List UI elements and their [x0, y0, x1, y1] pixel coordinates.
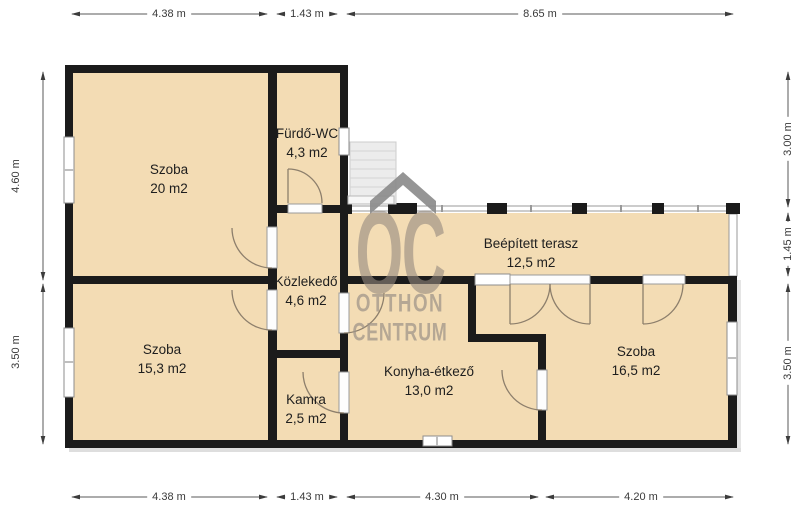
- wall-segment: [538, 410, 546, 448]
- wall-segment: [685, 276, 737, 284]
- room-area: 12,5 m2: [484, 253, 579, 272]
- dim-label-right-3: 3.50 m: [782, 341, 794, 385]
- room-area: 16,5 m2: [612, 361, 661, 380]
- door-panel: [339, 372, 349, 413]
- wall-segment: [65, 276, 277, 284]
- watermark-otthon: OTTHON: [356, 290, 444, 319]
- dim-label-right-1: 3.00 m: [782, 117, 794, 161]
- wall-segment: [65, 440, 737, 448]
- floor-plan: Szoba 20 m2 Fürdő-WC 4,3 m2 Közlekedő 4,…: [0, 0, 800, 516]
- room-area: 15,3 m2: [138, 359, 187, 378]
- door-panel: [288, 204, 322, 213]
- room-label-kamra: Kamra 2,5 m2: [285, 390, 326, 428]
- door-panel: [537, 370, 547, 410]
- room-label-szoba-20: Szoba 20 m2: [150, 160, 188, 198]
- window-mullion: [727, 357, 737, 359]
- wall-segment: [538, 342, 546, 370]
- terrace-post: [652, 203, 664, 214]
- terrace-post: [340, 203, 352, 214]
- watermark-centrum: CENTRUM: [352, 319, 447, 348]
- door-panel: [339, 293, 349, 333]
- room-name: Szoba: [150, 160, 188, 179]
- wall-shadow: [69, 448, 741, 452]
- window-mullion: [64, 169, 74, 171]
- dim-label-bottom-2: 1.43 m: [285, 491, 329, 503]
- glazing-tick: [697, 205, 699, 212]
- room-name: Fürdő-WC: [276, 124, 338, 143]
- room-area: 4,6 m2: [274, 291, 337, 310]
- room-label-konyha: Konyha-étkező 13,0 m2: [384, 362, 474, 400]
- room-area: 4,3 m2: [276, 143, 338, 162]
- room-area: 20 m2: [150, 179, 188, 198]
- window: [339, 128, 349, 155]
- glazing-tick: [620, 205, 622, 212]
- wall-segment: [268, 330, 277, 448]
- dim-label-bottom-3: 4.30 m: [420, 491, 464, 503]
- wall-segment: [268, 350, 348, 358]
- terrace-post: [487, 203, 507, 214]
- room-label-kozlekedo: Közlekedő 4,6 m2: [274, 272, 337, 310]
- window-mullion: [64, 361, 74, 363]
- dim-label-top-2: 1.43 m: [285, 8, 329, 20]
- room-name: Kamra: [285, 390, 326, 409]
- room-area: 13,0 m2: [384, 381, 474, 400]
- room-name: Szoba: [612, 342, 661, 361]
- terrace-post: [572, 203, 587, 214]
- room-label-szoba-153: Szoba 15,3 m2: [138, 340, 187, 378]
- wall-segment: [468, 284, 476, 338]
- room-name: Konyha-étkező: [384, 362, 474, 381]
- wall-segment: [340, 413, 348, 448]
- dim-label-top-1: 4.38 m: [147, 8, 191, 20]
- glazing-tick: [530, 205, 532, 212]
- dim-label-left-2: 3.50 m: [10, 330, 22, 374]
- door-panel: [267, 227, 277, 268]
- window-mullion: [436, 436, 438, 446]
- wall-segment: [340, 65, 348, 128]
- dim-label-top-3: 8.65 m: [518, 8, 562, 20]
- dim-label-right-2: 1.45 m: [782, 222, 794, 266]
- room-name: Beépített terasz: [484, 234, 579, 253]
- dim-label-bottom-4: 4.20 m: [619, 491, 663, 503]
- glazing-right: [729, 214, 737, 276]
- room-area: 2,5 m2: [285, 409, 326, 428]
- room-label-furdo-wc: Fürdő-WC 4,3 m2: [276, 124, 338, 162]
- wall-segment: [65, 65, 348, 73]
- dim-label-left-1: 4.60 m: [10, 154, 22, 198]
- room-label-terasz: Beépített terasz 12,5 m2: [484, 234, 579, 272]
- terrace-post: [726, 203, 740, 214]
- room-name: Közlekedő: [274, 272, 337, 291]
- door-panel: [643, 275, 685, 284]
- wall-segment: [468, 334, 546, 342]
- door-panel: [510, 275, 590, 284]
- window: [475, 274, 510, 285]
- wall-segment: [590, 276, 643, 284]
- dim-label-bottom-1: 4.38 m: [147, 491, 191, 503]
- room-name: Szoba: [138, 340, 187, 359]
- wall-shadow: [737, 280, 741, 448]
- wall-segment: [268, 205, 288, 213]
- room-label-szoba-165: Szoba 16,5 m2: [612, 342, 661, 380]
